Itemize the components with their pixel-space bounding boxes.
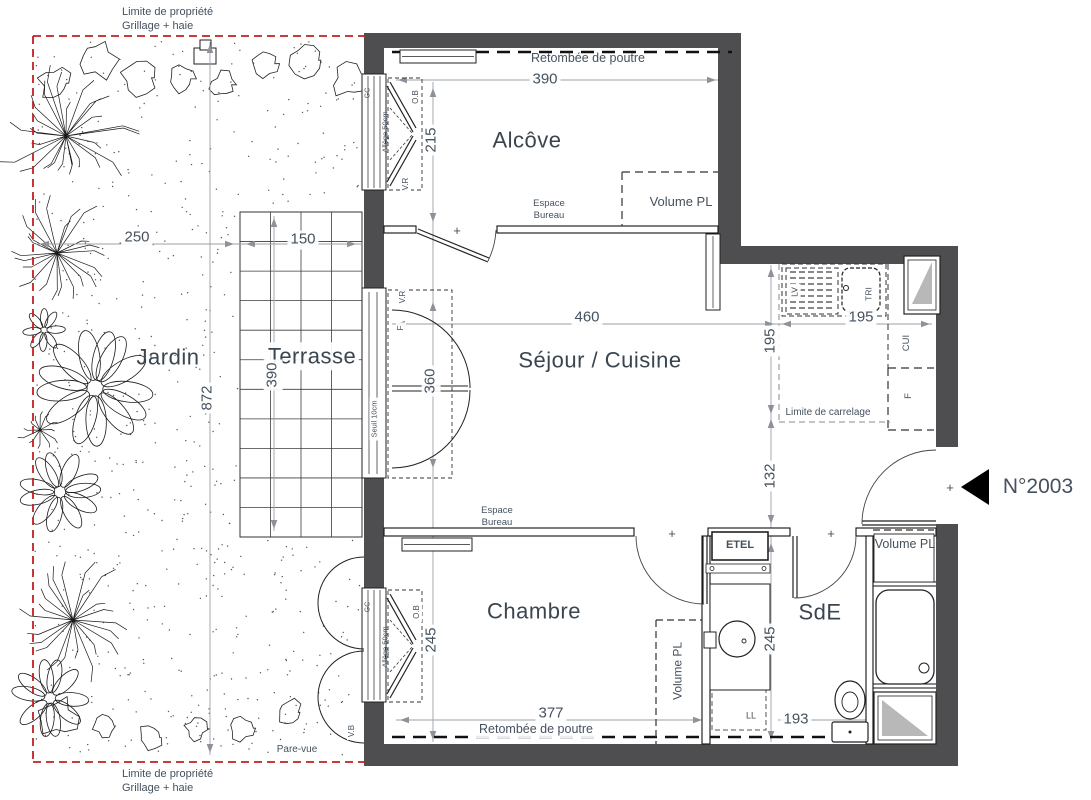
room-region-chambre: [384, 536, 702, 744]
entrance-arrow-icon: [961, 469, 989, 505]
room-region-jardin: [33, 35, 240, 762]
floor-plan: Limite de propriété Grillage + haieRetom…: [0, 0, 1091, 800]
room-region-terrasse: [240, 212, 362, 537]
room-region-alcove: [384, 48, 718, 226]
room-region-sde: [710, 536, 936, 744]
room-region-sejour: [384, 233, 936, 528]
